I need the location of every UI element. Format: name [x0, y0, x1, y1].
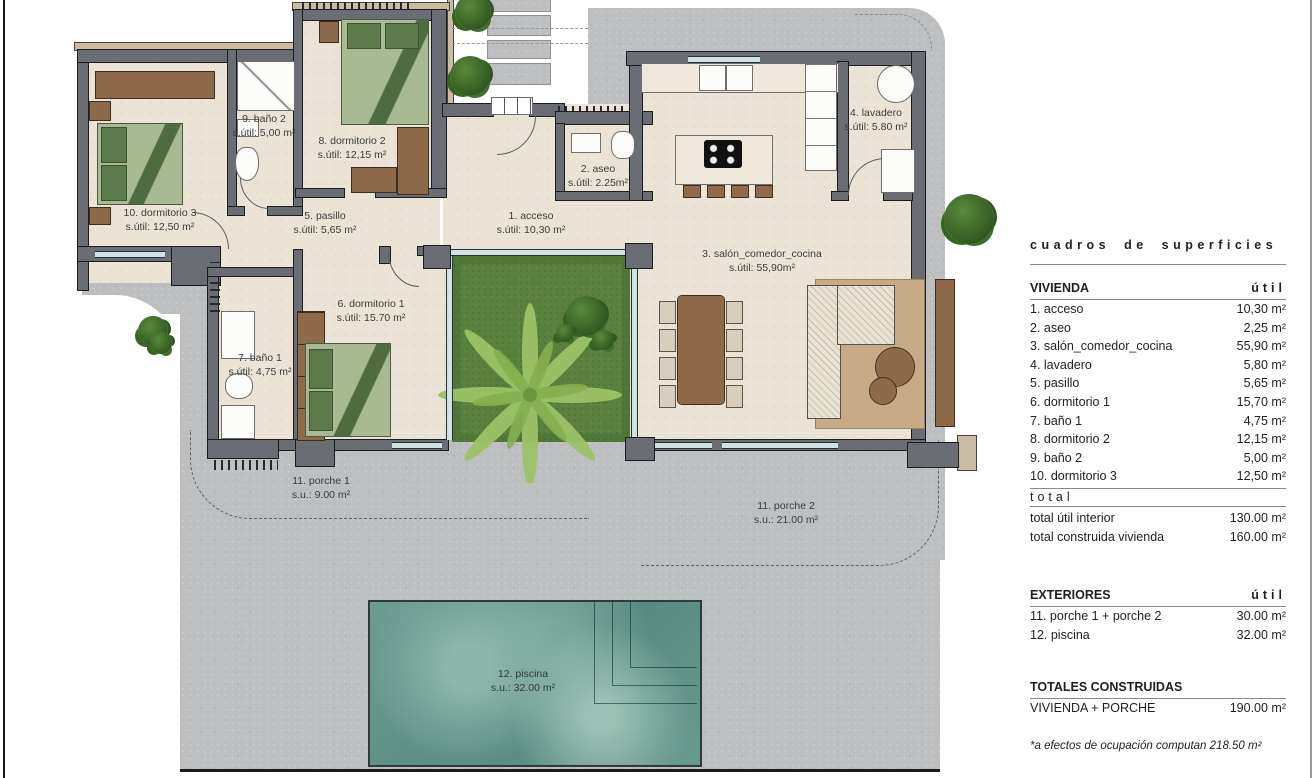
wall-segment: [443, 104, 493, 116]
glass-acceso-courtyard: [448, 249, 628, 256]
driveway-edge: [448, 0, 453, 106]
table-row-total: total útil interior130.00 m²: [1030, 509, 1286, 528]
dining-chair: [660, 386, 675, 407]
window-kitchen: [688, 56, 760, 63]
toilet: [612, 132, 634, 158]
nightstand: [90, 102, 110, 120]
appliance: [882, 150, 914, 192]
washing-machine: [878, 66, 914, 102]
bed-pillow: [386, 24, 418, 48]
kitchen-sink: [700, 66, 725, 90]
courtyard-bush: [556, 324, 574, 342]
window-salon: [645, 442, 712, 449]
wall-hatch: [214, 460, 278, 470]
window-dorm3: [95, 251, 165, 258]
wall-segment: [296, 10, 446, 20]
exteriores-header: EXTERIORES: [1030, 588, 1111, 602]
dresser: [352, 168, 396, 192]
total-divider: total: [1030, 488, 1286, 507]
room-label-dormitorio1: 6. dormitorio 1s.útil: 15.70 m²: [337, 298, 406, 325]
tall-cabinets: [806, 64, 836, 170]
sofa-l-horizontal: [838, 286, 894, 344]
bush: [150, 332, 172, 354]
driveway-slab: [488, 64, 550, 84]
room-label-pasillo: 5. pasillos.útil: 5,65 m²: [293, 210, 356, 237]
exteriores-header-row: EXTERIORES útil: [1030, 582, 1286, 607]
wall-segment: [208, 268, 300, 276]
bed-pillow: [310, 350, 332, 388]
window-dorm1: [392, 442, 442, 449]
courtyard-bush: [592, 330, 614, 350]
totales-header-row: TOTALES CONSTRUIDAS: [1030, 674, 1286, 699]
wall-segment: [296, 189, 344, 197]
table-row-total: total construida vivienda160.00 m²: [1030, 528, 1286, 547]
bed-pillow: [102, 128, 126, 162]
table-row: 6. dormitorio 115,70 m²: [1030, 393, 1286, 412]
pool-steps: [630, 601, 697, 668]
bed-pillow: [310, 392, 332, 430]
totales-header: TOTALES CONSTRUIDAS: [1030, 680, 1182, 694]
room-label-dormitorio3: 10. dormitorio 3s.útil: 12,50 m²: [124, 207, 197, 234]
wall-segment: [228, 207, 244, 215]
footnote: *a efectos de ocupación computan 218.50 …: [1030, 740, 1286, 752]
wall-segment: [630, 52, 642, 200]
courtyard-pillar: [626, 438, 654, 460]
table-row: 12. piscina32.00 m²: [1030, 626, 1286, 645]
stool: [708, 186, 724, 197]
courtyard-pillar: [424, 246, 450, 268]
panel-title: cuadros de superficies: [1030, 238, 1286, 265]
table-row: 7. baño 14,75 m²: [1030, 412, 1286, 431]
table-row: 11. porche 1 + porche 230.00 m²: [1030, 607, 1286, 626]
shower: [222, 406, 254, 438]
toilet: [236, 148, 258, 180]
bed-pillow: [348, 24, 380, 48]
stool: [684, 186, 700, 197]
page-frame-right: [1310, 0, 1312, 778]
shower: [238, 62, 294, 110]
kitchen-sink: [727, 66, 752, 90]
coffee-table: [870, 378, 896, 404]
room-label-porche1: 11. porche 1s.u.: 9.00 m²: [292, 475, 350, 502]
dining-chair: [727, 302, 742, 323]
dining-chair: [727, 358, 742, 379]
courtyard-pillar: [626, 244, 652, 268]
porch-pillar: [208, 440, 278, 458]
edging-top-left: [75, 43, 300, 50]
vivienda-unit-col: útil: [1251, 281, 1286, 295]
dining-chair: [727, 330, 742, 351]
porch-pillar: [296, 440, 334, 466]
driveway-slab: [488, 0, 550, 11]
porch-pillar: [908, 443, 958, 467]
cooktop: [704, 140, 742, 168]
table-row: 9. baño 25,00 m²: [1030, 449, 1286, 468]
bush: [450, 56, 490, 96]
wardrobe: [96, 72, 214, 98]
plot-white-cutout: [0, 295, 180, 778]
room-label-piscina: 12. piscinas.u.: 32.00 m²: [491, 668, 555, 695]
wall-hatch: [302, 2, 412, 10]
room-label-acceso: 1. accesos.útil: 10,30 m²: [497, 210, 566, 237]
dining-chair: [727, 386, 742, 407]
stool: [732, 186, 748, 197]
dining-chair: [660, 302, 675, 323]
table-row: 8. dormitorio 212,15 m²: [1030, 430, 1286, 449]
driveway-slab: [488, 16, 550, 35]
room-label-lavadero: 4. lavaderos.útil: 5.80 m²: [844, 107, 907, 134]
room-label-bano2: 9. baño 2s.útil: 5,00 m²: [232, 113, 295, 140]
nightstand: [320, 22, 338, 42]
tv-sideboard: [936, 280, 954, 426]
vivienda-header: VIVIENDA: [1030, 281, 1089, 295]
bush: [944, 194, 994, 244]
room-label-porche2: 11. porche 2s.u.: 21.00 m²: [754, 500, 818, 527]
glass-dorm1-courtyard: [446, 256, 453, 440]
driveway-dash-line: [452, 43, 588, 44]
wall-segment: [556, 124, 564, 200]
dining-chair: [660, 330, 675, 351]
sink: [572, 134, 600, 152]
wall-segment: [78, 50, 300, 62]
table-row: 4. lavadero5,80 m²: [1030, 356, 1286, 375]
room-label-bano1: 7. baño 1s.útil: 4,75 m²: [228, 352, 291, 379]
room-label-aseo: 2. aseos.útil: 2.25m²: [568, 163, 628, 190]
wall-segment: [832, 192, 848, 200]
exteriores-unit-col: útil: [1251, 588, 1286, 602]
bed-pillow: [102, 166, 126, 200]
table-row: 1. acceso10,30 m²: [1030, 300, 1286, 319]
window-salon: [722, 442, 838, 449]
table-row: 3. salón_comedor_cocina55,90 m²: [1030, 337, 1286, 356]
entry-steps: [492, 98, 532, 114]
floor-plan-page: 10. dormitorio 3s.útil: 12,50 m² 9. baño…: [0, 0, 1315, 778]
vivienda-header-row: VIVIENDA útil: [1030, 275, 1286, 300]
nightstand: [90, 208, 110, 224]
wall-segment: [884, 192, 912, 200]
dining-table: [678, 296, 724, 404]
table-row: VIVIENDA + PORCHE190.00 m²: [1030, 699, 1286, 718]
dining-chair: [660, 358, 675, 379]
table-row: 2. aseo2,25 m²: [1030, 319, 1286, 338]
glass-salon-courtyard: [631, 256, 638, 440]
page-frame-left: [3, 0, 5, 778]
stool: [756, 186, 772, 197]
wardrobe: [398, 128, 428, 194]
surface-tables-panel: cuadros de superficies VIVIENDA útil 1. …: [1030, 238, 1286, 752]
table-row: 10. dormitorio 312,50 m²: [1030, 467, 1286, 486]
sofa-l-vertical: [808, 286, 840, 418]
table-row: 5. pasillo5,65 m²: [1030, 374, 1286, 393]
room-label-salon: 3. salón_comedor_cocinas.útil: 55,90m²: [702, 248, 822, 275]
room-label-dormitorio2: 8. dormitorio 2s.útil: 12,15 m²: [318, 135, 387, 162]
edging-se-corner: [958, 436, 976, 470]
